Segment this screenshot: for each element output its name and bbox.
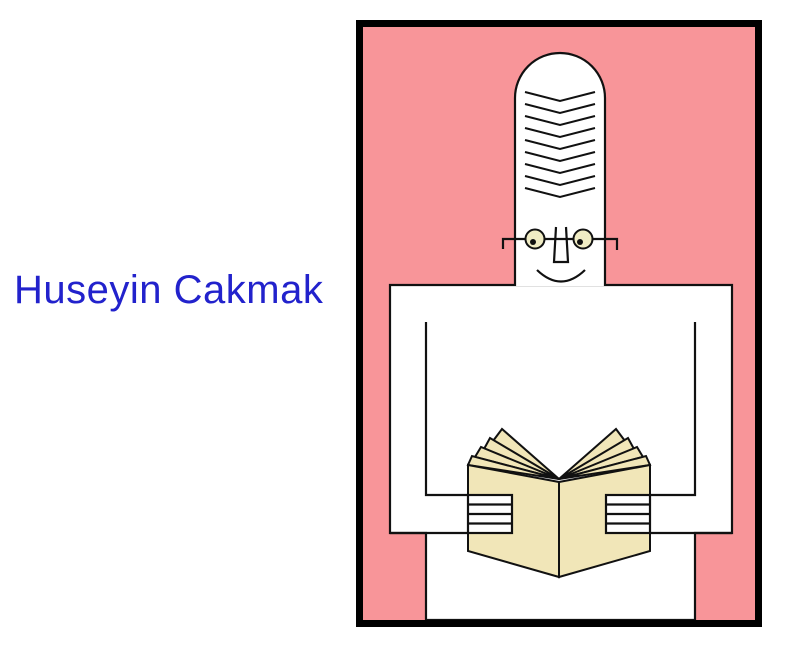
left-hand [468, 495, 512, 533]
portrait-illustration [0, 0, 800, 646]
right-pupil [577, 239, 583, 245]
right-hand [606, 495, 650, 533]
page: Huseyin Cakmak [0, 0, 800, 646]
figure-head [515, 53, 605, 286]
left-pupil [530, 239, 536, 245]
left-eye [526, 230, 545, 249]
right-eye [574, 230, 593, 249]
